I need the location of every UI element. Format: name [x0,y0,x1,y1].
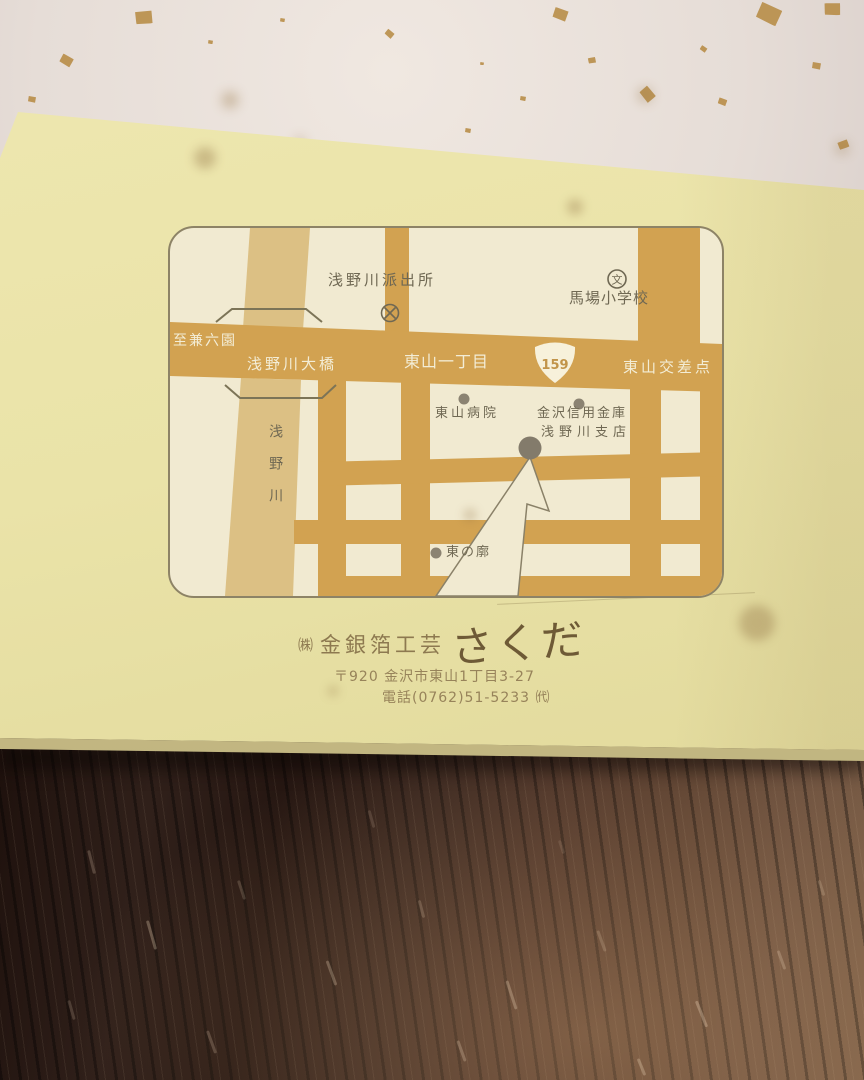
wood-grain-highlight [456,1040,466,1062]
company-name: 金銀箔工芸 [320,629,445,659]
card-stain [328,686,338,696]
card-stain [739,605,775,641]
wood-grain-highlight [596,930,606,952]
wood-grain-highlight [695,1000,708,1027]
wood-grain-highlight [87,850,96,874]
card-stain [194,147,216,169]
label-bank-line1: 金沢信用金庫 [537,407,627,422]
gold-flake [552,7,569,22]
label-hospital: 東山病院 [435,407,499,422]
wood-grain-highlight [558,840,565,854]
label-bank-line2: 浅野川支店 [541,426,631,441]
gold-flake [28,96,36,103]
wood-grain-highlight [206,1030,217,1054]
card-stain [464,509,476,521]
paper-smudge [836,142,848,154]
svg-text:159: 159 [541,358,568,373]
photo-scene: 文 159 浅野川派出所 馬場小学校 至兼六園 浅野川大橋 東山一丁目 東山交差… [0,0,864,1080]
label-to-kenrokuen: 至兼六園 [173,333,237,349]
gold-flake [587,56,597,65]
gold-flake [465,128,471,133]
wood-grain-highlight [368,810,376,828]
gold-flake [755,1,783,27]
card-stain [567,199,583,215]
wood-grain-highlight [818,880,826,896]
paper-smudge [638,88,652,102]
gold-flake [59,53,75,68]
road-south-4 [700,388,722,596]
higashi-quarter-dot [431,548,442,559]
label-police-box: 浅野川派出所 [328,272,436,289]
gold-flake [384,28,396,39]
label-intersection: 東山交差点 [623,359,713,376]
shop-location-dot [519,437,542,460]
wood-grain-highlight [418,900,426,918]
label-bridge: 浅野川大橋 [247,356,337,373]
access-map: 文 159 浅野川派出所 馬場小学校 至兼六園 浅野川大橋 東山一丁目 東山交差… [168,226,724,598]
school-icon: 文 [608,270,626,288]
gold-flake [812,62,821,70]
wood-grain-highlight [777,950,787,970]
label-district: 東山一丁目 [404,353,489,371]
gold-flake [480,62,484,65]
wood-grain-highlight [505,980,517,1009]
wood-grain-highlight [326,960,338,985]
label-school: 馬場小学校 [569,290,649,307]
road-south-3 [630,386,661,596]
road-south-2 [401,378,430,596]
label-river: 浅野川 [267,424,283,520]
gold-flake [699,45,708,53]
label-higashi-quarter: 東の廓 [446,546,491,561]
company-prefix: ㈱ [298,634,313,655]
paper-smudge [222,92,238,108]
hospital-dot [459,394,470,405]
wood-grain-highlight [237,880,246,900]
company-address: 〒920 金沢市東山1丁目3-27 [334,666,535,686]
gold-flake [133,8,154,27]
gold-flake [823,1,842,18]
gold-flake [717,97,727,106]
company-phone: 電話(0762)51-5233 ㈹ [382,687,551,707]
company-name-line: ㈱ 金銀箔工芸 さくだ [298,610,586,671]
gold-flake [208,40,213,44]
wood-grain-highlight [146,920,157,950]
svg-text:文: 文 [612,273,623,287]
gold-flake [280,18,285,22]
wood-grain-highlight [67,1000,75,1020]
gold-flake [520,96,526,101]
wood-grain-highlight [637,1058,647,1076]
